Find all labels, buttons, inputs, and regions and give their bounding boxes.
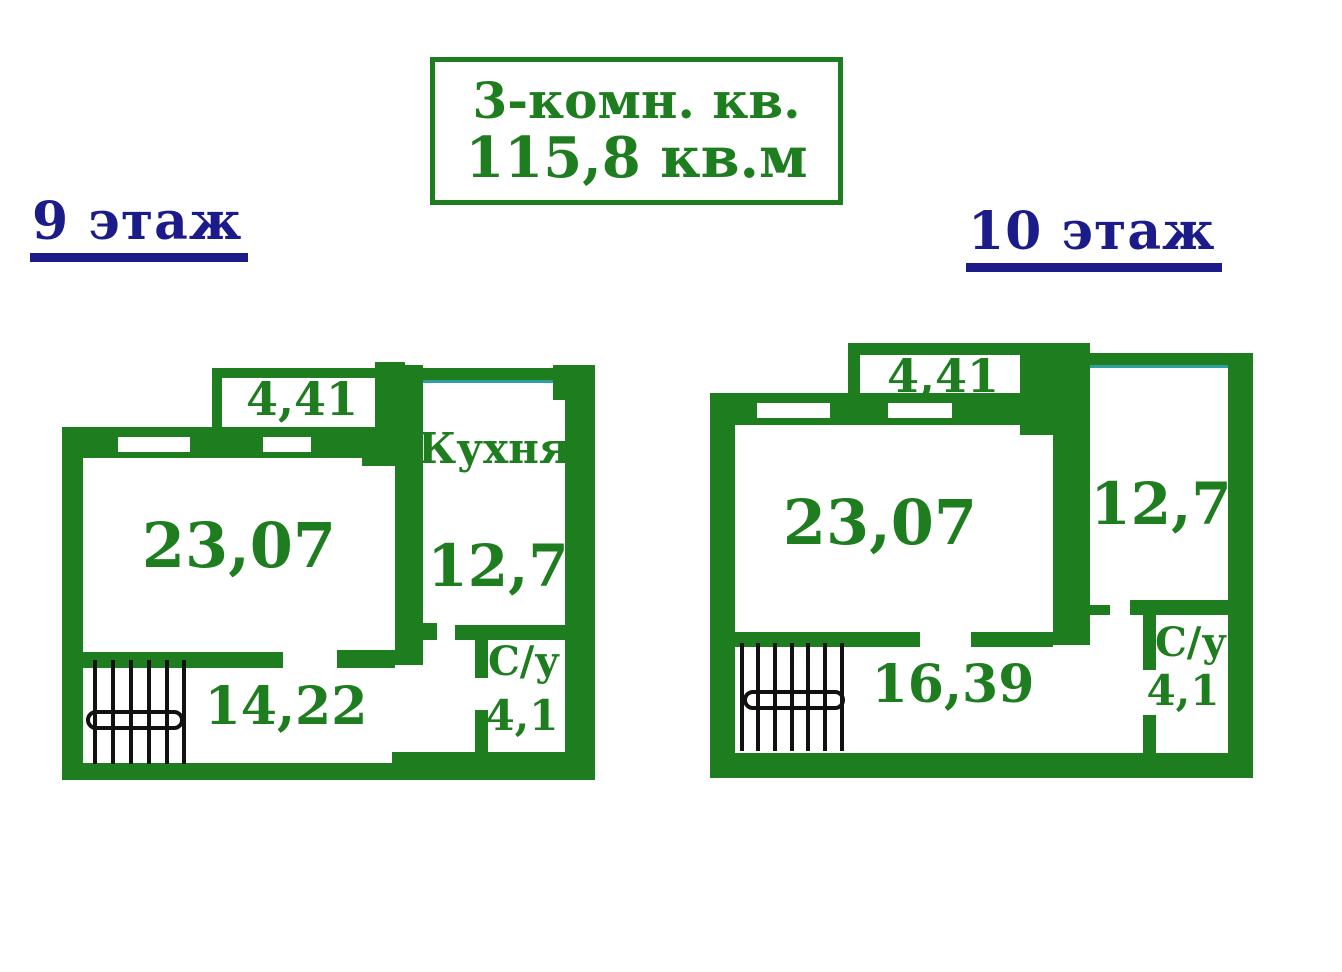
f10-window-1 (757, 403, 830, 418)
f10-mid-wall (1053, 393, 1090, 645)
f9-window-1 (118, 437, 190, 452)
f10-bottom-wall (710, 753, 1253, 778)
floor-10-plan: 4,41 23,07 12,7 16,39 С/у 4,1 (708, 333, 1253, 788)
f9-kitchen-name-label: Кухня (418, 424, 570, 473)
f9-bottom-wall-left (62, 763, 392, 780)
f9-left-outer-wall (62, 427, 83, 780)
f9-wc-name-label: С/у (488, 638, 560, 685)
floor-10-heading: 10 этаж (966, 206, 1222, 272)
f9-bathroom-left-wall-upper (475, 640, 488, 678)
f10-left-outer-wall (710, 393, 735, 778)
f10-room-area-label: 12,7 (1090, 470, 1231, 538)
f10-bathroom-left-wall-lower (1143, 715, 1156, 756)
f9-wc-area-label: 4,1 (485, 691, 558, 740)
apartment-type-label: 3-комн. кв. (472, 73, 800, 128)
f9-stairs (88, 660, 184, 764)
f9-kitchen-top-wall (423, 368, 565, 380)
f10-stairs (742, 643, 843, 751)
f10-living-bottom-wall-left (735, 632, 920, 647)
f9-balcony-area-label: 4,41 (246, 372, 358, 426)
floor-9-plan: 4,41 Кухня 23,07 12,7 14,22 С/у 4,1 (60, 360, 595, 780)
f9-living-bottom-wall-right (337, 650, 395, 668)
f10-wc-name-label: С/у (1155, 619, 1227, 666)
f9-mid-wall-right-tab (423, 623, 437, 640)
f9-living-area-label: 23,07 (142, 509, 336, 582)
f9-kitchen-area-label: 12,7 (427, 532, 568, 600)
apartment-area-label: 115,8 кв.м (465, 128, 807, 190)
f9-mid-wall-left-tab (362, 427, 395, 466)
f10-living-area-label: 23,07 (783, 486, 977, 559)
f9-window-2 (263, 437, 311, 452)
f10-window-2 (888, 403, 952, 418)
floor-9-heading: 9 этаж (30, 196, 248, 262)
f10-mid-wall-right-tab (1090, 605, 1110, 615)
f9-bottom-wall-right (392, 752, 567, 780)
f9-hall-area-label: 14,22 (205, 676, 368, 737)
apartment-title-box: 3-комн. кв. 115,8 кв.м (430, 57, 843, 205)
f10-bathroom-top-wall (1130, 600, 1228, 615)
f10-balcony-area-label: 4,41 (887, 349, 999, 403)
f9-living-top-wall (62, 427, 395, 458)
f9-kitchen-window-line (423, 380, 565, 383)
f10-right-outer-wall (1228, 353, 1253, 778)
f10-wc-area-label: 4,1 (1146, 666, 1219, 715)
f10-hall-area-label: 16,39 (872, 654, 1035, 715)
f10-living-bottom-wall-right (971, 632, 1053, 647)
f9-mid-wall (395, 365, 423, 665)
